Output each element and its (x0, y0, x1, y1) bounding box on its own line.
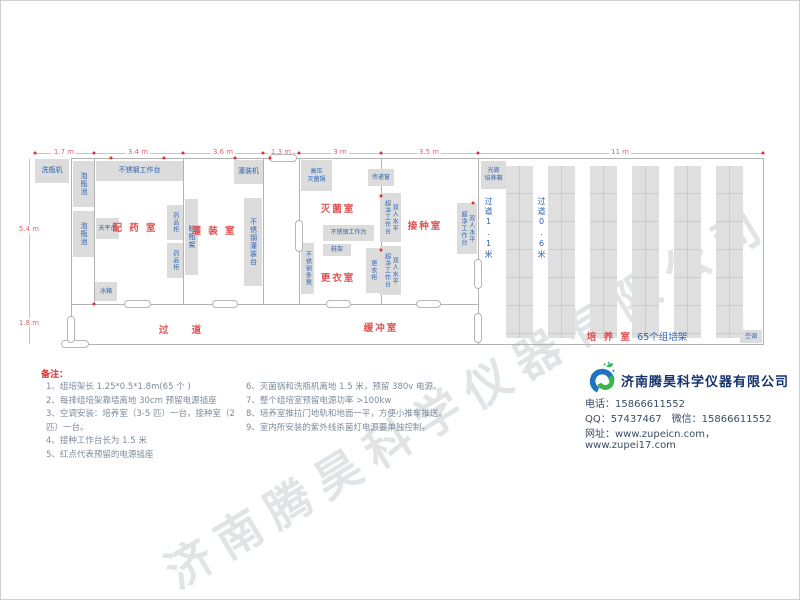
furniture-unit: 光周 培养箱 (481, 161, 506, 189)
dimension-label: 3.6 m (211, 148, 235, 156)
sliding-door (61, 340, 89, 348)
floor-plan: 1.7 m3.4 m3.6 m1.3 m3 m3.5 m11 m5.4 m1.8… (1, 1, 800, 600)
power-socket-dot (762, 152, 765, 155)
dimension-label: 1.8 m (17, 319, 41, 327)
power-socket-dot (110, 157, 113, 160)
furniture-rack: 双人水平 超净工作台 (380, 193, 401, 242)
dimension-line (29, 159, 30, 344)
culture-shelf-column (506, 166, 533, 338)
furniture-rack: 晾瓶架 (185, 199, 198, 275)
culture-room-name: 培 养 室 (587, 332, 637, 343)
company-website: 网址：www.zupeicn.com，www.zupei17.com (585, 425, 799, 451)
notes-column-2: 6、灭菌锅和洗瓶机离地 1.5 米，预留 380v 电源。7、整个组培室预留电源… (246, 381, 456, 435)
note-item: 3、空调安装：培养室（3-5 匹）一台，接种室（2 匹）一台。 (46, 408, 246, 435)
sliding-door (474, 259, 482, 289)
wall-segment (763, 158, 764, 345)
dimension-label: 11 m (609, 148, 631, 156)
company-qq-wechat: QQ：57437467 微信：15866611552 (585, 410, 772, 425)
sliding-door (212, 300, 238, 308)
sliding-door (269, 154, 297, 162)
note-item: 9、室内所安装的紫外线杀菌灯电源要单独控制。 (246, 422, 456, 436)
furniture-unit: 不锈钢工作台 (323, 225, 374, 241)
power-socket-dot (262, 152, 265, 155)
sliding-door (326, 300, 351, 308)
power-socket-dot (477, 152, 480, 155)
furniture-rack: 不锈钢条凳 (301, 243, 314, 294)
wall-segment (71, 158, 763, 159)
note-item: 4、接种工作台长为 1.5 米 (46, 435, 246, 449)
sliding-door (124, 300, 151, 308)
wall-segment (263, 158, 264, 304)
room-label: 灌 装 室 (191, 223, 236, 237)
furniture-unit: 高压 灭菌锅 (301, 160, 332, 191)
note-item: 2、每排组培架靠墙离地 30cm 预留电源插座 (46, 395, 246, 409)
wall-segment (71, 344, 763, 345)
culture-rack-count: 65个组培架 (637, 332, 687, 343)
power-socket-dot (163, 157, 166, 160)
power-socket-dot (472, 202, 475, 205)
company-phone: 电话：15866611552 (585, 395, 685, 410)
dimension-label: 1.7 m (52, 148, 76, 156)
culture-shelf-column (590, 166, 617, 338)
dimension-label: 3.4 m (126, 148, 150, 156)
culture-shelf-column (548, 166, 575, 338)
note-item: 8、培养室推拉门地轨和地面一平，方便小推车推送。 (246, 408, 456, 422)
dimension-label: 3 m (331, 148, 349, 156)
sliding-door (474, 313, 482, 343)
sliding-door (416, 300, 441, 308)
culture-shelf-column (716, 166, 743, 338)
power-socket-dot (93, 303, 96, 306)
sliding-door (67, 316, 75, 343)
furniture-unit: 冰箱 (95, 282, 117, 301)
furniture-unit: 灌装机 (234, 160, 263, 184)
power-socket-dot (182, 152, 185, 155)
note-item: 6、灭菌锅和洗瓶机离地 1.5 米，预留 380v 电源。 (246, 381, 456, 395)
culture-shelf-column (632, 166, 659, 338)
notes-column-1: 1、组培架长 1.25*0.5*1.8m(65 个 )2、每排组培架靠墙离地 3… (46, 381, 246, 462)
wall-segment (183, 158, 184, 304)
furniture-rack: 药品柜 (167, 205, 183, 240)
power-socket-dot (34, 152, 37, 155)
notes-title: 备注： (41, 367, 68, 380)
company-logo-icon (587, 361, 619, 395)
furniture-unit: 不锈钢工作台 (96, 161, 183, 181)
note-item: 1、组培架长 1.25*0.5*1.8m(65 个 ) (46, 381, 246, 395)
floor-plan-page: 济南腾昊科学仪器有限公司 1.7 m3.4 m3.6 m1.3 m3 m3.5 … (0, 0, 800, 600)
furniture-rack: 泡瓶池 (73, 161, 94, 207)
power-socket-dot (234, 157, 237, 160)
note-item: 5、红点代表预留的电源插座 (46, 449, 246, 463)
power-socket-dot (380, 195, 383, 198)
aisle-width-label: 过道1.1米 (484, 197, 492, 260)
culture-shelf-column (674, 166, 701, 338)
power-socket-dot (380, 152, 383, 155)
room-label: 更衣室 (321, 270, 356, 284)
culture-room-label: 培 养 室 65个组培架 (587, 329, 688, 343)
aisle-width-label: 过道0.6米 (537, 197, 545, 260)
furniture-rack: 双人水平 超净工作台 (457, 203, 477, 254)
furniture-rack: 更衣柜 (366, 248, 380, 293)
furniture-unit: 空调 (740, 330, 762, 343)
furniture-unit: 鞋架 (323, 244, 351, 256)
sliding-door (295, 220, 303, 252)
dimension-label: 5.4 m (17, 225, 41, 233)
power-socket-dot (380, 249, 383, 252)
room-label: 过 道 (159, 322, 203, 336)
furniture-rack: 药品柜 (167, 243, 183, 278)
furniture-unit: 洗瓶机 (35, 159, 69, 183)
furniture-rack: 泡瓶池 (73, 211, 94, 257)
note-item: 7、整个组培室预留电源功率 >100kw (246, 395, 456, 409)
room-label: 缓冲室 (364, 320, 399, 334)
room-label: 接种室 (408, 218, 443, 232)
company-name: 济南腾昊科学仪器有限公司 (621, 371, 789, 390)
furniture-rack: 双人水平 超净工作台 (380, 246, 401, 295)
power-socket-dot (269, 157, 272, 160)
dimension-label: 3.5 m (417, 148, 441, 156)
power-socket-dot (298, 152, 301, 155)
furniture-unit: 传递窗 (368, 169, 394, 186)
power-socket-dot (93, 152, 96, 155)
furniture-rack: 不锈钢灌装台 (244, 198, 262, 286)
room-label: 灭菌室 (321, 201, 356, 215)
room-label: 配 药 室 (112, 220, 157, 234)
